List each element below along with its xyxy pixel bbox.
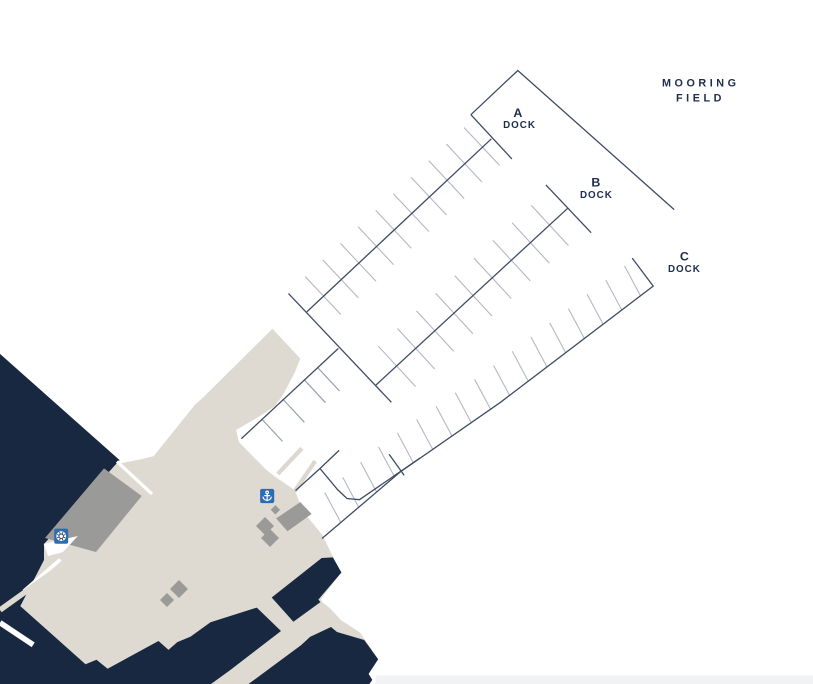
svg-text:DOCK: DOCK bbox=[580, 190, 613, 201]
svg-text:DOCK: DOCK bbox=[668, 264, 701, 275]
svg-text:MOORING: MOORING bbox=[662, 78, 740, 90]
svg-text:FIELD: FIELD bbox=[676, 92, 725, 104]
svg-text:B: B bbox=[591, 176, 600, 190]
svg-text:C: C bbox=[680, 250, 689, 264]
svg-text:DOCK: DOCK bbox=[503, 120, 536, 131]
svg-text:A: A bbox=[513, 106, 522, 120]
